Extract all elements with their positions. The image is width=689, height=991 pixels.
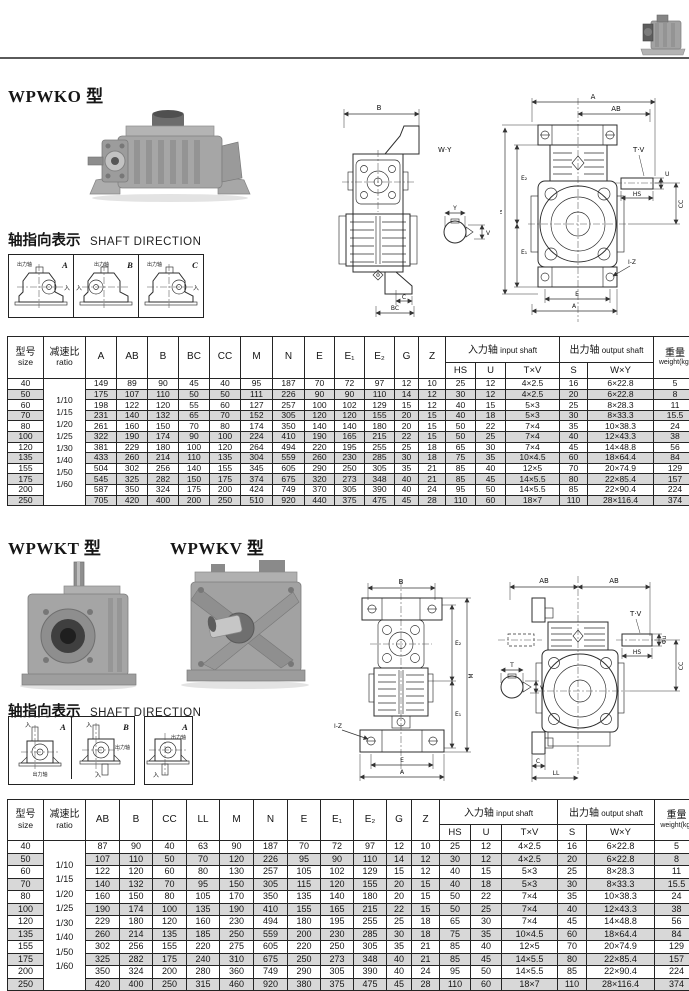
cell: 157	[655, 953, 689, 966]
cell: 460	[220, 978, 254, 991]
cell: 129	[365, 400, 395, 411]
cell: 4×2.5	[502, 853, 558, 866]
cell: 374	[654, 495, 689, 506]
col-size: 型号size	[8, 337, 44, 379]
cell: 180	[288, 916, 321, 929]
cell: 35	[560, 421, 588, 432]
svg-text:U: U	[665, 171, 669, 178]
cell: 22×85.4	[587, 953, 655, 966]
cell: 60	[210, 400, 241, 411]
cell: 15	[387, 866, 412, 879]
wpwkv-front-drawing: AB AB T·V Φu HS CC T	[490, 556, 689, 791]
cell: 135	[210, 453, 241, 464]
cell: 390	[354, 966, 387, 979]
shaft-direction-diagrams-2: A 入 出力轴 B 入 入 出力轴	[8, 716, 193, 785]
cell: 10×4.5	[502, 928, 558, 941]
cell: 155	[153, 941, 187, 954]
cell: 6×22.8	[587, 841, 655, 854]
cell: 8×33.3	[588, 410, 654, 421]
cell: 348	[354, 953, 387, 966]
cell: 494	[254, 916, 288, 929]
cell: 5	[654, 379, 689, 390]
spec-row-50: 5010711050701202269590110141230124×2.520…	[8, 853, 689, 866]
ratio-value: 1/40	[44, 454, 85, 466]
cell: 305	[354, 941, 387, 954]
cell: 129	[655, 941, 689, 954]
cell: 35	[471, 928, 502, 941]
cell: 95	[446, 484, 476, 495]
cell: 85	[560, 484, 588, 495]
spec-row-250: 2504204002503154609203803754754528110601…	[8, 978, 689, 991]
cell-size: 80	[8, 891, 44, 904]
cell: 122	[86, 866, 120, 879]
cell: 72	[321, 841, 354, 854]
cell: 50	[153, 853, 187, 866]
cell: 320	[305, 474, 335, 485]
svg-text:C: C	[402, 294, 406, 301]
spec-row-80: 802611601507080174350140140180201550227×…	[8, 421, 689, 432]
header-row-1: 型号size减速比ratioAABBBCCCMNEE₁E₂GZ入力轴 input…	[8, 337, 689, 363]
cell: 97	[354, 841, 387, 854]
cell: 240	[187, 953, 220, 966]
cell: 22	[395, 431, 419, 442]
cell: 22	[476, 421, 506, 432]
svg-text:出力轴: 出力轴	[32, 771, 47, 778]
cell: 40	[476, 463, 506, 474]
cell: 256	[120, 941, 153, 954]
cell: 360	[220, 966, 254, 979]
cell: 12	[476, 389, 506, 400]
cell: 250	[335, 463, 365, 474]
col-CC: CC	[210, 337, 241, 379]
cell: 127	[241, 400, 273, 411]
cell: 390	[365, 484, 395, 495]
cell: 510	[241, 495, 273, 506]
cell: 30	[387, 928, 412, 941]
cell: 4×2.5	[506, 389, 560, 400]
cell: 195	[335, 442, 365, 453]
cell: 45	[476, 474, 506, 485]
cell: 132	[148, 410, 179, 421]
cell: 6×22.8	[588, 389, 654, 400]
cell: 920	[273, 495, 305, 506]
col-group-output-shaft: 出力轴 output shaft	[558, 800, 655, 825]
cell: 255	[365, 442, 395, 453]
cell: 322	[86, 431, 117, 442]
cell: 85	[440, 953, 471, 966]
svg-text:M: M	[468, 673, 475, 678]
cell: 45	[471, 953, 502, 966]
cell: 229	[86, 916, 120, 929]
cell: 25	[558, 866, 587, 879]
cell-size: 155	[8, 463, 44, 474]
cell: 11	[655, 866, 689, 879]
cell: 224	[655, 966, 689, 979]
col-S: S	[560, 363, 588, 379]
cell: 140	[321, 891, 354, 904]
cell: 120	[335, 410, 365, 421]
cell: 257	[273, 400, 305, 411]
cell: 50	[476, 484, 506, 495]
cell: 424	[241, 484, 273, 495]
svg-text:N: N	[500, 210, 504, 215]
cell: 285	[365, 453, 395, 464]
svg-text:E₂: E₂	[521, 175, 528, 182]
cell: 229	[117, 442, 148, 453]
cell: 70	[560, 463, 588, 474]
ratio-value: 1/50	[44, 466, 85, 478]
cell: 12	[476, 379, 506, 390]
cell: 282	[120, 953, 153, 966]
cell: 12	[412, 866, 440, 879]
cell: 261	[86, 421, 117, 432]
cell: 38	[654, 431, 689, 442]
svg-text:E₁: E₁	[455, 711, 462, 718]
svg-text:CC: CC	[678, 200, 685, 208]
cell: 110	[365, 389, 395, 400]
svg-text:CC: CC	[678, 662, 685, 670]
col-T×V: T×V	[502, 825, 558, 841]
cell: 190	[305, 431, 335, 442]
cell: 21	[419, 463, 446, 474]
wpwko-spec-table: 型号size减速比ratioAABBBCCCMNEE₁E₂GZ入力轴 input…	[7, 336, 689, 506]
cell: 174	[241, 421, 273, 432]
cell-size: 40	[8, 841, 44, 854]
cell: 226	[254, 853, 288, 866]
shaft-direction-cell-a: 出力轴 A 入	[9, 255, 74, 317]
cell: 260	[305, 453, 335, 464]
cell: 494	[273, 442, 305, 453]
col-N: N	[273, 337, 305, 379]
cell: 304	[241, 453, 273, 464]
wpwko-front-drawing: A AB T·V U HS CC N	[500, 92, 689, 330]
col-group-input-shaft: 入力轴 input shaft	[446, 337, 560, 363]
col-U: U	[471, 825, 502, 841]
cell: 115	[288, 878, 321, 891]
cell: 190	[117, 431, 148, 442]
cell: 282	[148, 474, 179, 485]
col-HS: HS	[446, 363, 476, 379]
cell: 60	[153, 866, 187, 879]
cell: 50	[179, 389, 210, 400]
cell: 28×116.4	[587, 978, 655, 991]
spec-row-200: 2005873503241752004247493703053904024955…	[8, 484, 689, 495]
cell: 14	[395, 389, 419, 400]
cell: 175	[86, 389, 117, 400]
cell: 920	[254, 978, 288, 991]
cell: 5×3	[506, 400, 560, 411]
col-group-input-shaft: 入力轴 input shaft	[440, 800, 558, 825]
cell: 40	[387, 953, 412, 966]
cell: 40	[446, 400, 476, 411]
ratio-value: 1/40	[44, 930, 85, 945]
cell-ratio: 1/101/151/201/251/301/401/501/60	[44, 841, 86, 991]
cell: 10	[412, 841, 440, 854]
cell: 56	[654, 442, 689, 453]
cell-size: 120	[8, 916, 44, 929]
svg-text:入: 入	[193, 285, 199, 292]
cell: 200	[288, 928, 321, 941]
cell-size: 80	[8, 421, 44, 432]
cell: 110	[446, 495, 476, 506]
cell: 22×90.4	[588, 484, 654, 495]
wpwkt-direction-pair: A 入 出力轴 B 入 入 出力轴	[8, 716, 135, 785]
spec-row-40: 401/101/151/201/251/301/401/501/60149899…	[8, 379, 689, 390]
ratio-value: 1/50	[44, 945, 85, 960]
cell: 85	[440, 941, 471, 954]
cell: 95	[288, 853, 321, 866]
cell-size: 120	[8, 442, 44, 453]
catalog-page: WPWKO 型 B	[0, 0, 689, 991]
cell-size: 70	[8, 878, 44, 891]
cell: 230	[220, 916, 254, 929]
cell: 10	[419, 379, 446, 390]
svg-text:出力轴: 出力轴	[17, 261, 32, 268]
cell: 440	[305, 495, 335, 506]
cell: 21	[412, 953, 440, 966]
cell: 15	[476, 400, 506, 411]
cell: 8×28.3	[587, 866, 655, 879]
cell: 70	[305, 379, 335, 390]
cell: 60	[558, 928, 587, 941]
cell: 18	[419, 453, 446, 464]
svg-text:出力轴: 出力轴	[115, 744, 130, 751]
cell: 7×4	[506, 431, 560, 442]
cell: 504	[86, 463, 117, 474]
wpwkt-front-drawing: B E₂ E₁ M I-Z E	[330, 558, 480, 790]
cell: 180	[354, 891, 387, 904]
col-A: A	[86, 337, 117, 379]
col-B: B	[148, 337, 179, 379]
cell: 256	[148, 463, 179, 474]
strip-gap	[135, 716, 144, 785]
cell: 381	[86, 442, 117, 453]
spec-row-155: 1553022561552202756052202503053521854012…	[8, 941, 689, 954]
cell: 65	[440, 916, 471, 929]
spec-row-175: 1753252821752403106752502733484021854514…	[8, 953, 689, 966]
ratio-value: 1/60	[44, 959, 85, 974]
cell: 65	[179, 410, 210, 421]
cell: 675	[254, 953, 288, 966]
cell: 152	[241, 410, 273, 421]
cell: 70	[153, 878, 187, 891]
cell: 400	[120, 978, 153, 991]
col-Z: Z	[412, 800, 440, 841]
shaft-direction-cell-b: 出力轴 B 入	[74, 255, 139, 317]
cell: 28	[412, 978, 440, 991]
cell: 120	[153, 916, 187, 929]
cell: 250	[220, 928, 254, 941]
cell: 310	[220, 953, 254, 966]
cell: 40	[558, 903, 587, 916]
cell: 120	[321, 878, 354, 891]
cell-size: 60	[8, 866, 44, 879]
cell: 290	[288, 966, 321, 979]
cell: 12	[419, 389, 446, 400]
cell: 8	[655, 853, 689, 866]
cell: 200	[210, 484, 241, 495]
cell: 60	[471, 978, 502, 991]
cell: 215	[365, 431, 395, 442]
col-size: 型号size	[8, 800, 44, 841]
col-Z: Z	[419, 337, 446, 379]
cell: 14×5.5	[502, 966, 558, 979]
cell: 50	[210, 389, 241, 400]
cell: 605	[273, 463, 305, 474]
cell: 110	[440, 978, 471, 991]
cell: 90	[120, 841, 153, 854]
cell: 264	[241, 442, 273, 453]
cell: 65	[446, 442, 476, 453]
cell: 375	[321, 978, 354, 991]
cell: 7×4	[506, 442, 560, 453]
cell: 250	[321, 941, 354, 954]
cell: 80	[153, 891, 187, 904]
cell: 18	[412, 928, 440, 941]
cell: 273	[321, 953, 354, 966]
col-E₂: E₂	[365, 337, 395, 379]
cell: 102	[335, 400, 365, 411]
cell: 22	[471, 891, 502, 904]
cell: 140	[305, 421, 335, 432]
svg-text:W·Y: W·Y	[438, 146, 452, 154]
cell: 605	[254, 941, 288, 954]
cell: 89	[117, 379, 148, 390]
cell: 255	[354, 916, 387, 929]
cell: 140	[117, 410, 148, 421]
cell: 374	[241, 474, 273, 485]
svg-text:LL: LL	[553, 770, 560, 777]
spec-row-70: 702311401326570152305120120155201540185×…	[8, 410, 689, 421]
spec-row-100: 100190174100135190410155165215221550257×…	[8, 903, 689, 916]
cell: 155	[210, 463, 241, 474]
col-W×Y: W×Y	[588, 363, 654, 379]
cell: 130	[220, 866, 254, 879]
cell: 5×3	[502, 878, 558, 891]
cell: 111	[241, 389, 273, 400]
cell: 315	[187, 978, 220, 991]
cell: 559	[273, 453, 305, 464]
cell: 97	[365, 379, 395, 390]
header-row-1: 型号size减速比ratioABBCCLLMNEE₁E₂GZ入力轴 input …	[8, 800, 689, 825]
cell: 224	[654, 484, 689, 495]
ratio-value: 1/10	[44, 858, 85, 873]
cell: 380	[288, 978, 321, 991]
cell: 60	[560, 453, 588, 464]
svg-text:入: 入	[95, 772, 101, 779]
wpwkv-photo	[175, 556, 317, 692]
col-HS: HS	[440, 825, 471, 841]
svg-text:V: V	[486, 230, 491, 237]
top-divider	[0, 57, 689, 59]
col-ratio: 减速比ratio	[44, 800, 86, 841]
wpwkt-title: WPWKT 型	[8, 534, 101, 559]
col-S: S	[558, 825, 587, 841]
cell: 20	[395, 421, 419, 432]
spec-row-40: 401/101/151/201/251/301/401/501/60879040…	[8, 841, 689, 854]
cell: 4×2.5	[506, 379, 560, 390]
cell: 420	[117, 495, 148, 506]
cell: 30	[560, 410, 588, 421]
cell: 15	[419, 421, 446, 432]
cell: 15.5	[655, 878, 689, 891]
cell: 25	[440, 841, 471, 854]
cell: 410	[254, 903, 288, 916]
cell: 15	[412, 903, 440, 916]
cell: 56	[655, 916, 689, 929]
ratio-value: 1/25	[44, 901, 85, 916]
cell: 150	[179, 474, 210, 485]
cell: 6×22.8	[587, 853, 655, 866]
cell: 12×5	[502, 941, 558, 954]
cell: 559	[254, 928, 288, 941]
svg-text:C: C	[536, 758, 540, 765]
cell: 85	[446, 463, 476, 474]
cell: 110	[560, 495, 588, 506]
cell: 7×4	[502, 891, 558, 904]
cell: 87	[86, 841, 120, 854]
svg-text:B: B	[122, 722, 129, 732]
cell: 433	[86, 453, 117, 464]
cell: 95	[440, 966, 471, 979]
svg-text:C: C	[192, 260, 198, 270]
cell: 21	[412, 941, 440, 954]
cell: 110	[120, 853, 153, 866]
cell-size: 250	[8, 495, 44, 506]
svg-text:E: E	[400, 757, 404, 764]
cell: 12	[395, 379, 419, 390]
cell: 20×74.9	[588, 463, 654, 474]
cell: 50	[446, 431, 476, 442]
cell: 187	[254, 841, 288, 854]
cell: 5×3	[502, 866, 558, 879]
cell: 231	[86, 410, 117, 421]
cell: 25	[476, 431, 506, 442]
cell: 220	[288, 941, 321, 954]
cell: 165	[321, 903, 354, 916]
cell: 70	[288, 841, 321, 854]
col-M: M	[220, 800, 254, 841]
cell: 12×43.3	[587, 903, 655, 916]
cell: 107	[86, 853, 120, 866]
cell: 275	[220, 941, 254, 954]
shaft-direction-diagrams-1: 出力轴 A 入 出力轴 B 入 出力轴 C 入	[8, 254, 204, 318]
cell: 75	[446, 453, 476, 464]
cell: 122	[117, 400, 148, 411]
cell: 290	[305, 463, 335, 474]
cell: 749	[254, 966, 288, 979]
cell: 175	[153, 953, 187, 966]
cell: 84	[655, 928, 689, 941]
ratio-value: 1/20	[44, 418, 85, 430]
cell: 150	[148, 421, 179, 432]
cell: 24	[654, 421, 689, 432]
col-weight: 重量weight(kg)	[655, 800, 689, 841]
cell: 129	[354, 866, 387, 879]
spec-row-100: 1003221901749010022441019016521522155025…	[8, 431, 689, 442]
cell: 200	[179, 495, 210, 506]
svg-text:T·V: T·V	[632, 146, 645, 154]
cell: 18×7	[506, 495, 560, 506]
cell: 35	[476, 453, 506, 464]
cell: 22×90.4	[587, 966, 655, 979]
cell: 35	[395, 463, 419, 474]
cell: 6×22.8	[588, 379, 654, 390]
spec-row-80: 8016015080105170350135140180201550227×43…	[8, 891, 689, 904]
cell: 110	[148, 389, 179, 400]
cell: 350	[254, 891, 288, 904]
cell: 102	[321, 866, 354, 879]
